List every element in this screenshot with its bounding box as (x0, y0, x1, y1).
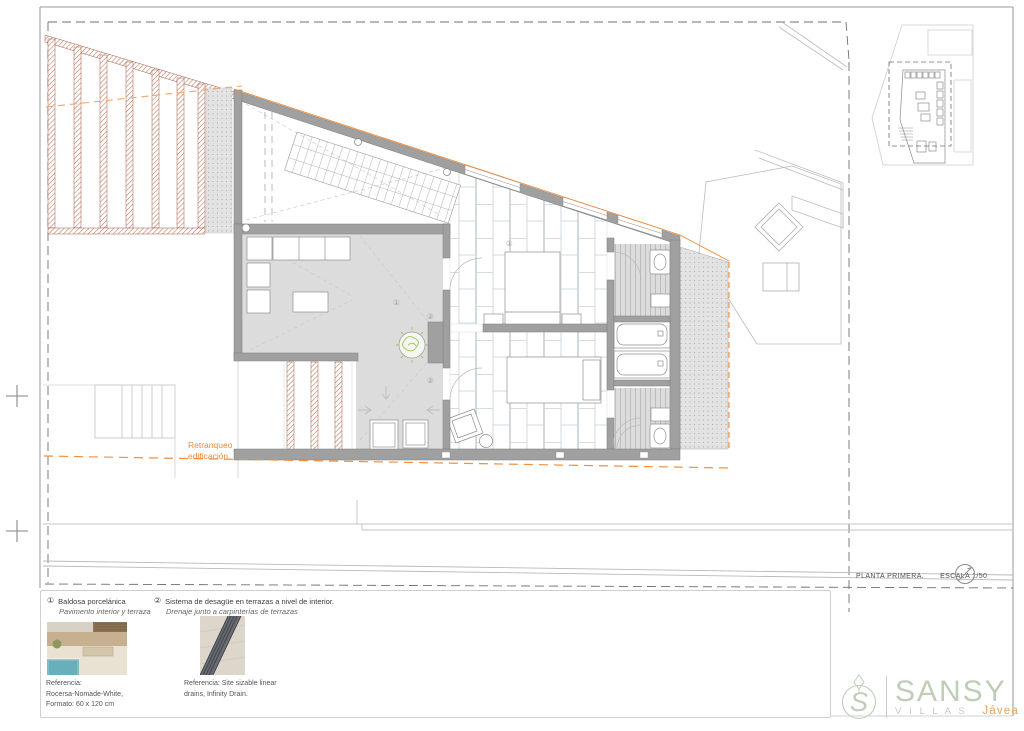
note-1-title: Baldosa porcelánica (58, 597, 126, 607)
legend-box: ① Baldosa porcelánica Pavimento interior… (40, 590, 831, 718)
pergola-top-left (45, 35, 234, 234)
note-1-reference: Referencia: Rocersa-Nomade-White, Format… (46, 679, 123, 711)
note-2-reference: Referencia: Site sizable linear drains, … (184, 679, 277, 700)
planter-strip (206, 88, 232, 233)
legend-note-2: ② Sistema de desagüe en terrazas a nivel… (154, 597, 334, 617)
pergola-lower-left (284, 362, 352, 458)
note-2-title: Sistema de desagüe en terrazas a nivel d… (165, 597, 334, 607)
legend-note-1: ① Baldosa porcelánica Pavimento interior… (47, 597, 151, 617)
setback-label: Retranqueo edificación (188, 440, 233, 461)
bathtub-2 (614, 351, 670, 378)
material-photo-porcelain-tile (47, 622, 127, 675)
note-2-number: ② (154, 597, 161, 606)
sink-bottom (650, 408, 670, 448)
material-photo-linear-drain (200, 616, 245, 675)
plan-title-text: PLANTA PRIMERA. (856, 573, 924, 580)
neighbor-structures (755, 22, 847, 228)
tree (396, 327, 428, 363)
note-1-number: ① (47, 597, 54, 606)
bed-2 (507, 357, 601, 403)
svg-text:①: ① (506, 239, 513, 248)
sansy-logo: S SANSY V I L L A S Jávea (836, 672, 1019, 722)
svg-text:Retranqueo: Retranqueo (188, 440, 233, 450)
note-1-subtitle: Pavimento interior y terraza (59, 607, 151, 617)
logo-divider (886, 676, 887, 718)
site-path-lines (43, 500, 1013, 580)
bathtub-1 (614, 321, 670, 348)
logo-name: SANSY (895, 678, 1019, 705)
register-marks (6, 385, 28, 542)
svg-text:②: ② (427, 312, 434, 321)
logo-text-block: SANSY V I L L A S Jávea (895, 678, 1019, 717)
svg-text:S: S (850, 687, 868, 717)
svg-text:①: ① (393, 298, 400, 307)
key-plan-inset (872, 25, 973, 165)
svg-text:②: ② (427, 376, 434, 385)
side-terrace-floor (680, 247, 728, 449)
north-arrow-icon (952, 561, 978, 587)
floor-plan-sheet: Retranqueo edificación ① ① ② ② ① Baldosa… (0, 0, 1024, 726)
note-2-subtitle: Drenaje junto a carpinterías de terrazas (166, 607, 334, 617)
logo-monogram-icon: S (836, 672, 882, 722)
svg-text:edificación: edificación (188, 451, 228, 461)
logo-tagline: V I L L A S (895, 706, 967, 717)
logo-location: Jávea (982, 705, 1019, 717)
